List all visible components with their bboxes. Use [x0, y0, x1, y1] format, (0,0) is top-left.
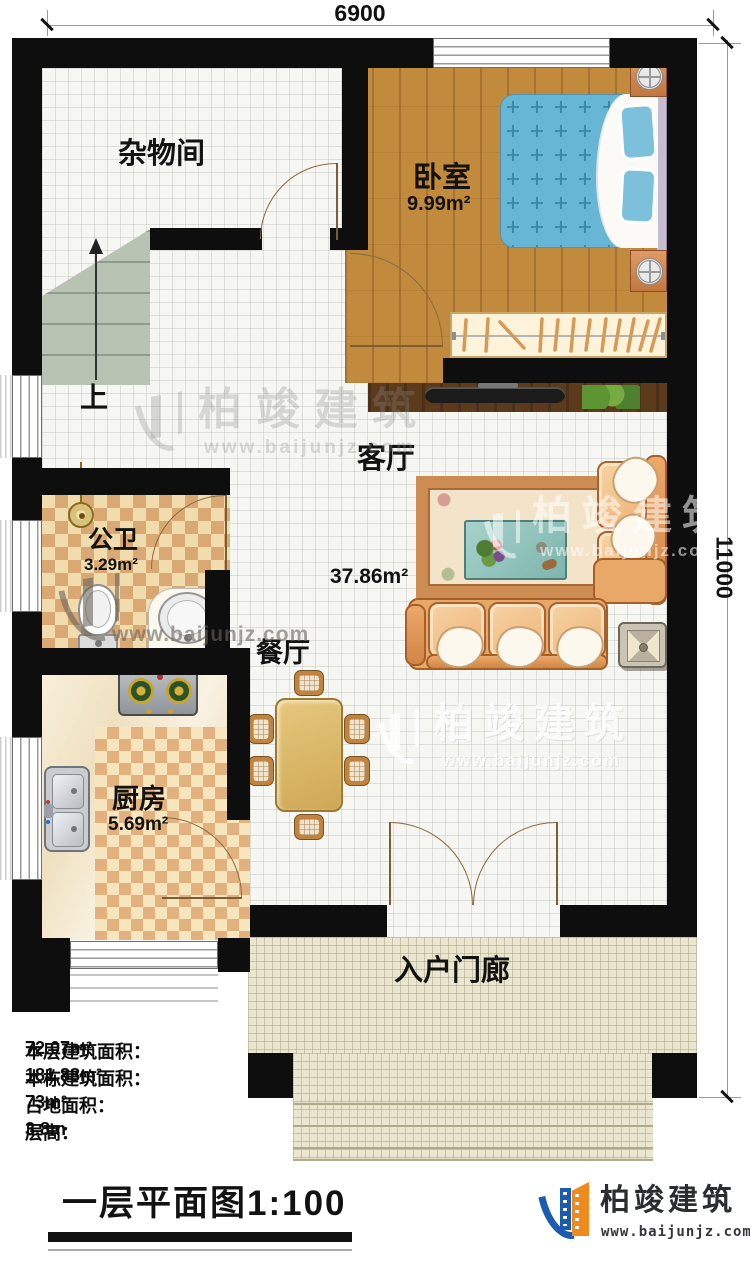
shower-center	[79, 513, 85, 519]
chair-seat	[299, 819, 319, 835]
drain	[71, 826, 77, 832]
stove-knob	[146, 709, 151, 714]
wall-left	[12, 458, 42, 520]
floor-plan-page: 杂物间 卧室 9.99m² 客厅 37.86m² 公卫 3.29m² 餐厅 厨房…	[0, 0, 750, 1264]
dim-ext	[699, 1097, 741, 1098]
side-table-knob	[639, 643, 648, 652]
logo-windows	[563, 1192, 567, 1226]
faucet-cold	[46, 820, 50, 824]
dining-chair	[344, 756, 370, 786]
wall-bedroom-bottom	[443, 358, 697, 383]
stats-value: 73m²	[25, 1092, 67, 1113]
stair-arrow-line	[95, 252, 97, 380]
watermark-name: 柏竣建筑	[198, 388, 430, 432]
wall-top-left	[12, 38, 433, 68]
sofa-armrest	[405, 604, 426, 666]
chair-seat	[349, 761, 365, 781]
watermark-logo-icon	[382, 712, 422, 764]
window-bedroom-top	[433, 38, 610, 68]
stove-icon	[118, 670, 198, 716]
side-table	[618, 622, 667, 668]
watermark-name: 柏竣建筑	[434, 704, 634, 744]
step-line	[293, 1103, 653, 1105]
faucet-icon	[44, 804, 53, 818]
logo-windows	[575, 1194, 579, 1230]
dining-chair	[344, 714, 370, 744]
wardrobe	[450, 312, 667, 358]
stats-value: 72.07m²	[25, 1038, 92, 1059]
title-underline-thick	[48, 1232, 352, 1242]
window-sill	[70, 974, 218, 1008]
stair-arrow-head	[89, 238, 103, 254]
watermark-site: www.baijunjz.com	[442, 752, 621, 769]
dining-chair	[248, 714, 274, 744]
bed-pillow	[619, 167, 658, 225]
watermark-site: www.baijunjz.com	[540, 542, 719, 559]
watermark-site: www.baijunjz.com	[204, 438, 416, 457]
step-line	[293, 1147, 653, 1149]
logo-name: 柏竣建筑	[600, 1186, 736, 1216]
dining-table	[275, 698, 343, 812]
watermark-name: 柏竣建筑	[532, 496, 732, 536]
kitchen-sink-icon	[44, 766, 90, 852]
wall-left	[12, 68, 42, 375]
stats-value: 3.8m	[25, 1119, 66, 1140]
logo: 柏竣建筑 www.baijunjz.com	[543, 1178, 733, 1250]
watermark-logo-icon	[140, 394, 184, 452]
dining-chair	[294, 670, 324, 696]
door-kitchen-leaf	[162, 897, 242, 899]
burner-icon	[166, 678, 192, 704]
room-area-bathroom: 3.29m²	[84, 556, 138, 573]
window-sill	[0, 737, 12, 880]
watermark-logo-icon	[488, 512, 522, 558]
wall-right	[667, 38, 697, 937]
step-line	[293, 1125, 653, 1127]
chair-seat	[299, 675, 319, 691]
sink-basin	[52, 774, 84, 809]
chair-seat	[253, 761, 269, 781]
room-label-bedroom: 卧室	[413, 164, 471, 193]
plant-icon	[582, 385, 640, 409]
porch-steps	[293, 1053, 653, 1161]
room-label-kitchen: 厨房	[112, 786, 166, 813]
faucet-hot	[46, 800, 50, 804]
page-title: 一层平面图1:100	[62, 1186, 347, 1221]
room-area-kitchen: 5.69m²	[108, 815, 168, 834]
wall-kitchen-right	[227, 675, 250, 820]
door-entry-right-leaf	[556, 822, 558, 905]
wall-left	[12, 880, 42, 940]
nightstand	[630, 250, 667, 292]
dining-chair	[294, 814, 324, 840]
room-area-living: 37.86m²	[330, 566, 408, 587]
window-stairwell	[12, 375, 42, 458]
stats-block: 本层建筑面积：72.07m² 本栋建筑面积：181.88m² 占地面积：73m²…	[25, 1038, 305, 1154]
wall-storage-divider	[342, 38, 368, 250]
wall-bathroom-top	[42, 468, 230, 495]
wall-bottom-living	[560, 905, 667, 937]
logo-building-blue	[560, 1188, 571, 1230]
room-label-porch: 入户门廊	[394, 957, 510, 986]
bed-pillow	[618, 103, 658, 161]
wall-storage-bottom	[150, 228, 262, 250]
sofa-corner	[593, 558, 667, 604]
room-label-storage: 杂物间	[118, 140, 205, 169]
wall-bottom-living	[250, 905, 387, 937]
wall-kitchen-bottom	[218, 938, 250, 972]
porch-pillar	[652, 1053, 697, 1098]
sink-basin	[52, 812, 84, 847]
room-area-bedroom: 9.99m²	[407, 194, 470, 214]
drain	[71, 788, 77, 794]
shower-icon	[68, 502, 94, 528]
lamp-icon	[636, 258, 663, 285]
tv-base	[478, 383, 518, 388]
burner-icon	[128, 678, 154, 704]
window-kitchen-left	[12, 737, 42, 880]
chair-seat	[349, 719, 365, 739]
wall-kitchen-bottom-corner	[12, 938, 70, 1012]
window-kitchen-bottom	[70, 941, 218, 969]
logo-building-orange	[572, 1182, 589, 1236]
window-sill	[0, 520, 12, 612]
stairs-up-label: 上	[80, 384, 108, 412]
chair-seat	[253, 719, 269, 739]
dim-top-value: 6900	[305, 2, 415, 25]
dim-ext	[699, 43, 741, 44]
dim-right-value: 11000	[713, 523, 736, 613]
window-sill	[0, 375, 12, 458]
hangers-icon	[452, 314, 665, 356]
door-bathroom-leaf	[225, 495, 227, 570]
title-underline-thin	[48, 1249, 352, 1251]
dining-chair	[248, 756, 274, 786]
logo-icon	[543, 1180, 595, 1246]
logo-site: www.baijunjz.com	[601, 1224, 750, 1240]
stats-value: 181.88m²	[25, 1065, 102, 1086]
tv-icon	[425, 387, 565, 403]
watermark-site: www.baijunjz.com	[112, 624, 309, 645]
window-bathroom	[12, 520, 42, 612]
door-storage-leaf	[336, 163, 338, 240]
stove-knob	[168, 709, 173, 714]
wall-bathroom-kitchen	[12, 648, 250, 675]
room-label-bathroom: 公卫	[88, 528, 138, 553]
